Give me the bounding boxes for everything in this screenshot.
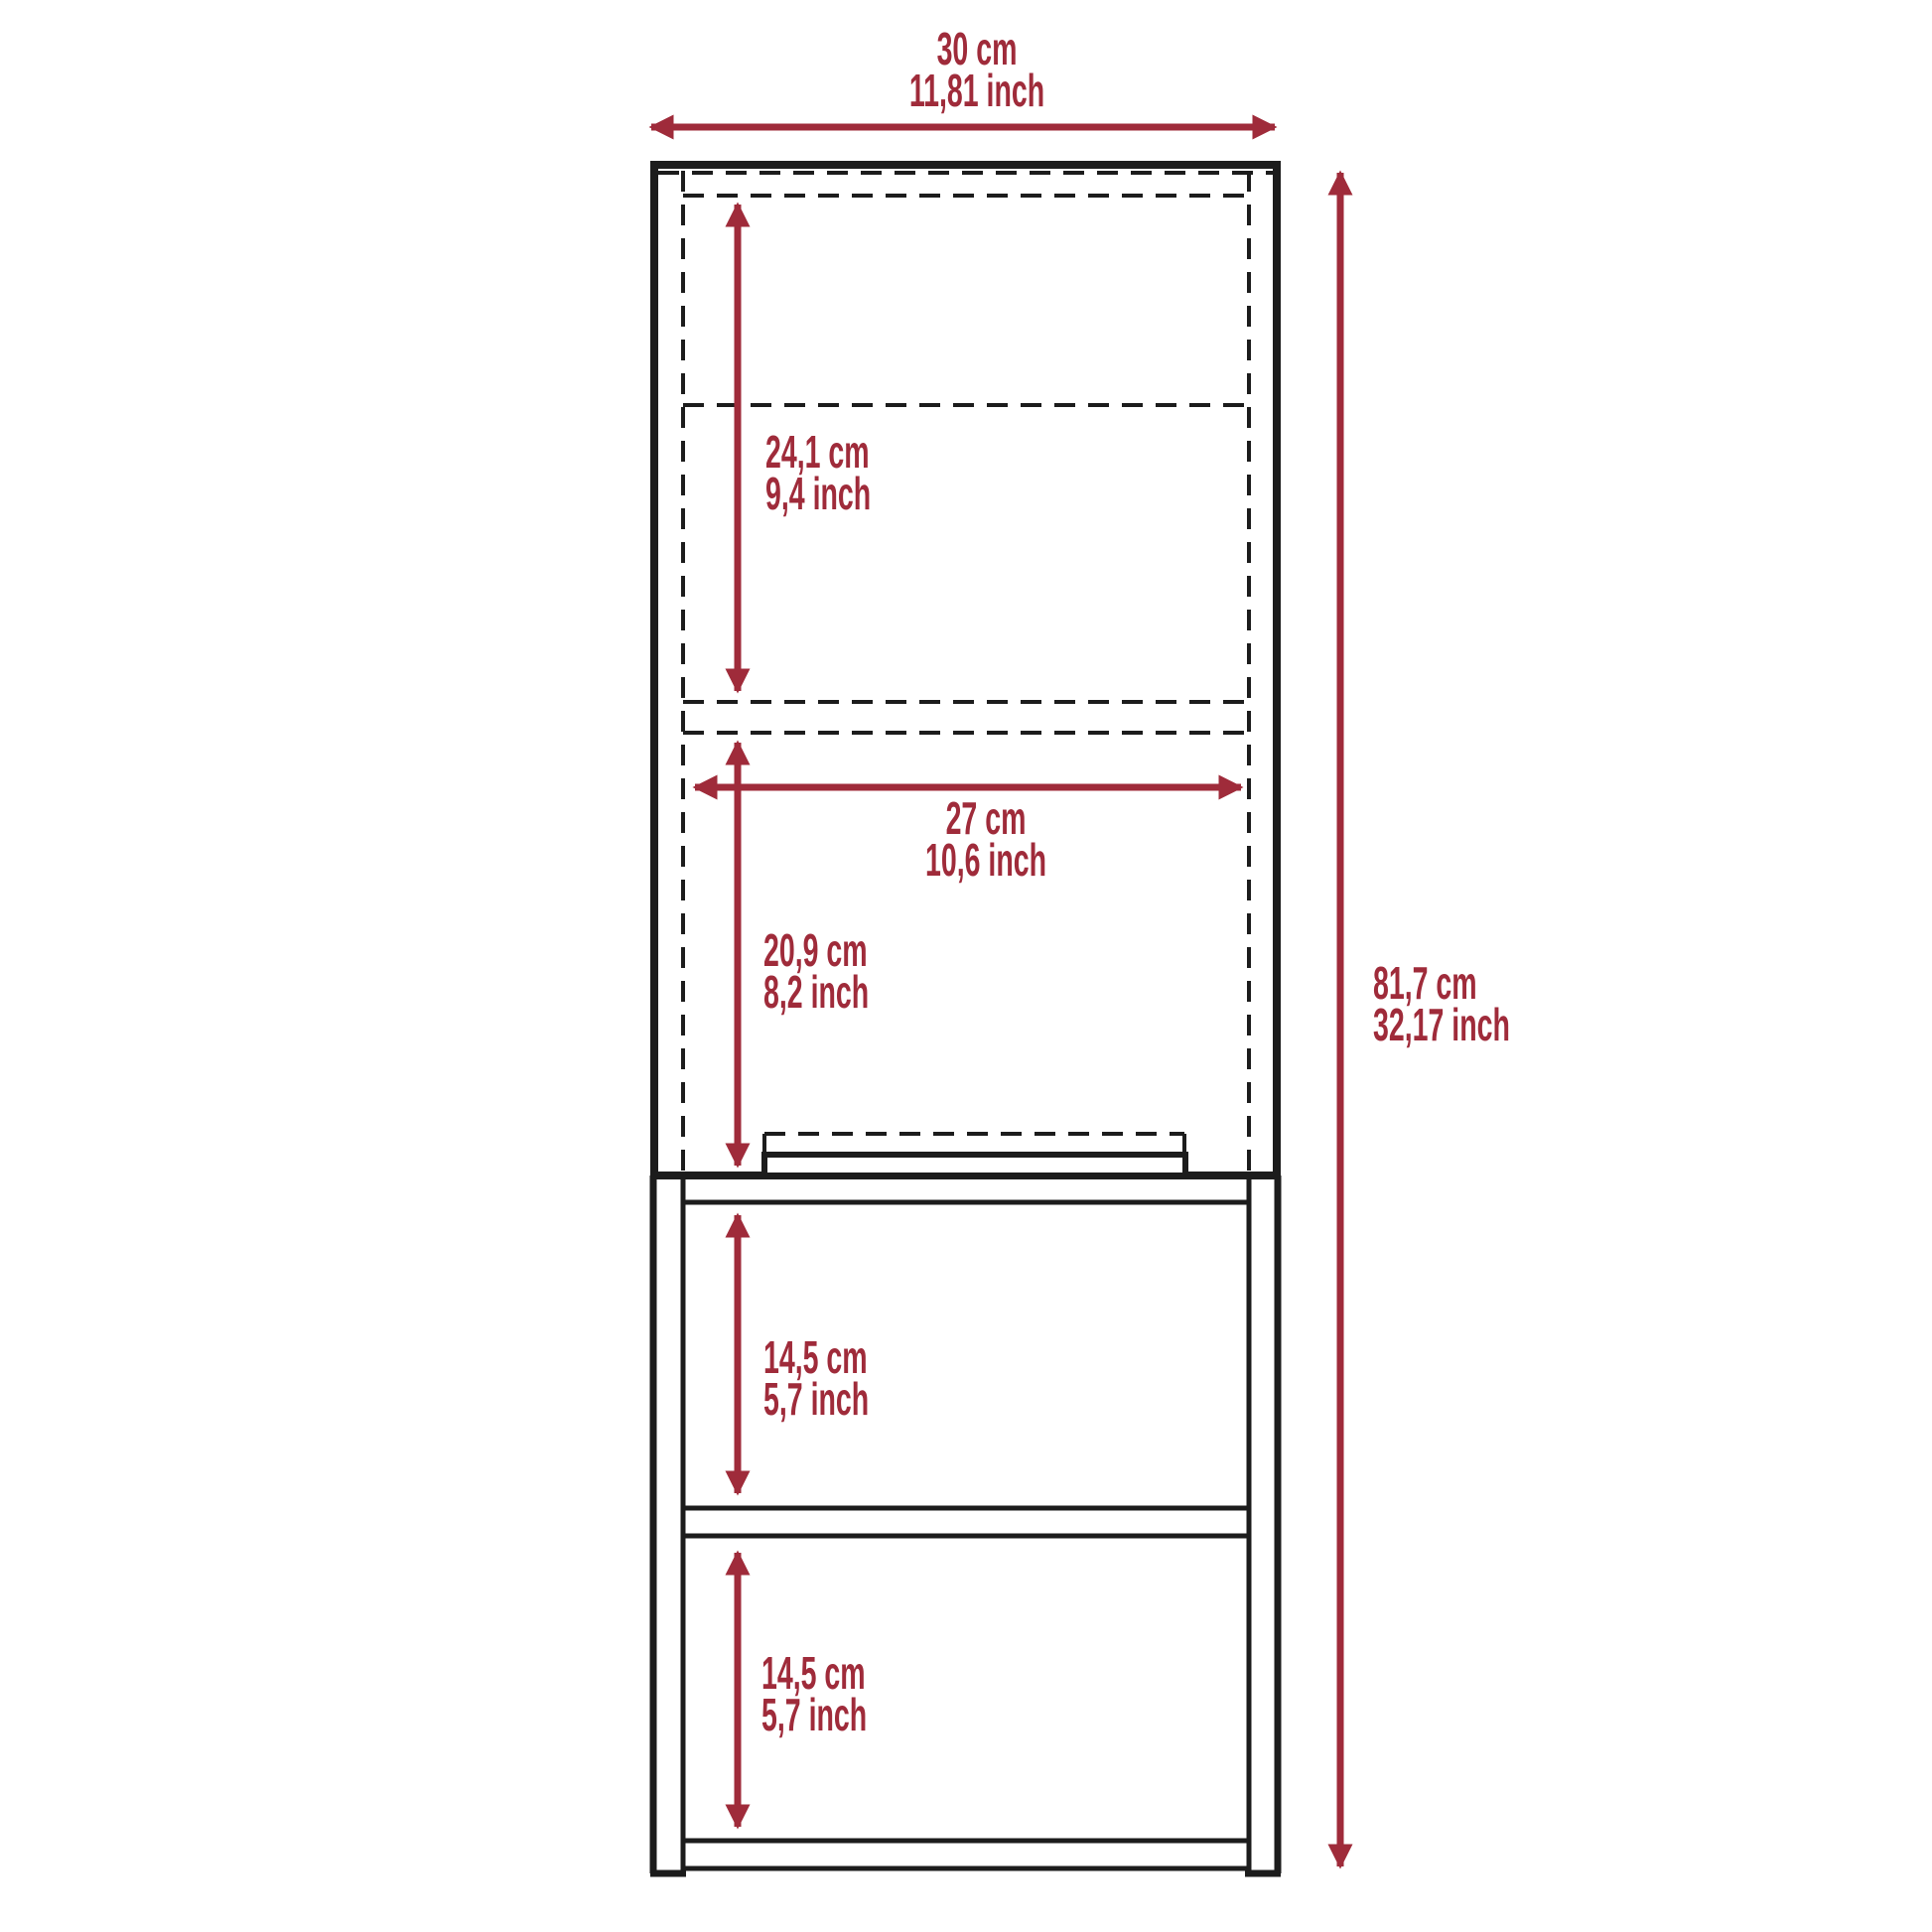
hidden-edges-dashed	[658, 171, 1274, 1173]
overall-height-cm: 81,7 cm	[1373, 962, 1510, 1004]
overall-width-inch: 11,81 inch	[854, 69, 1100, 111]
upper-compartment-height-cm: 24,1 cm	[765, 431, 871, 473]
lower-shelf-height-inch: 5,7 inch	[761, 1694, 867, 1735]
door-compartment-height-inch: 8,2 inch	[763, 971, 869, 1013]
lower-shelf-height-cm: 14,5 cm	[761, 1652, 867, 1694]
door-compartment-height-cm: 20,9 cm	[763, 929, 869, 971]
cabinet-line-drawing	[0, 0, 1932, 1932]
upper-shelf-height-inch: 5,7 inch	[763, 1378, 869, 1420]
upper-shelf-height-cm: 14,5 cm	[763, 1336, 869, 1378]
cabinet-structure	[650, 165, 1281, 1873]
overall-height-inch: 32,17 inch	[1373, 1004, 1510, 1045]
furniture-dimension-diagram: 30 cm 11,81 inch 81,7 cm 32,17 inch 24,1…	[0, 0, 1932, 1932]
upper-compartment-height-label: 24,1 cm 9,4 inch	[765, 431, 871, 514]
inner-width-inch: 10,6 inch	[863, 839, 1109, 881]
upper-cabinet-outline	[654, 165, 1277, 1175]
upper-compartment-height-inch: 9,4 inch	[765, 473, 871, 514]
upper-shelf-height-label: 14,5 cm 5,7 inch	[763, 1336, 869, 1420]
door-handle	[764, 1155, 1185, 1175]
overall-height-label: 81,7 cm 32,17 inch	[1373, 962, 1510, 1045]
lower-shelf-height-label: 14,5 cm 5,7 inch	[761, 1652, 867, 1735]
inner-width-label: 27 cm 10,6 inch	[863, 797, 1109, 881]
overall-width-cm: 30 cm	[854, 28, 1100, 69]
inner-width-cm: 27 cm	[863, 797, 1109, 839]
dimension-arrows	[651, 127, 1340, 1866]
door-compartment-height-label: 20,9 cm 8,2 inch	[763, 929, 869, 1013]
overall-width-label: 30 cm 11,81 inch	[854, 28, 1100, 111]
